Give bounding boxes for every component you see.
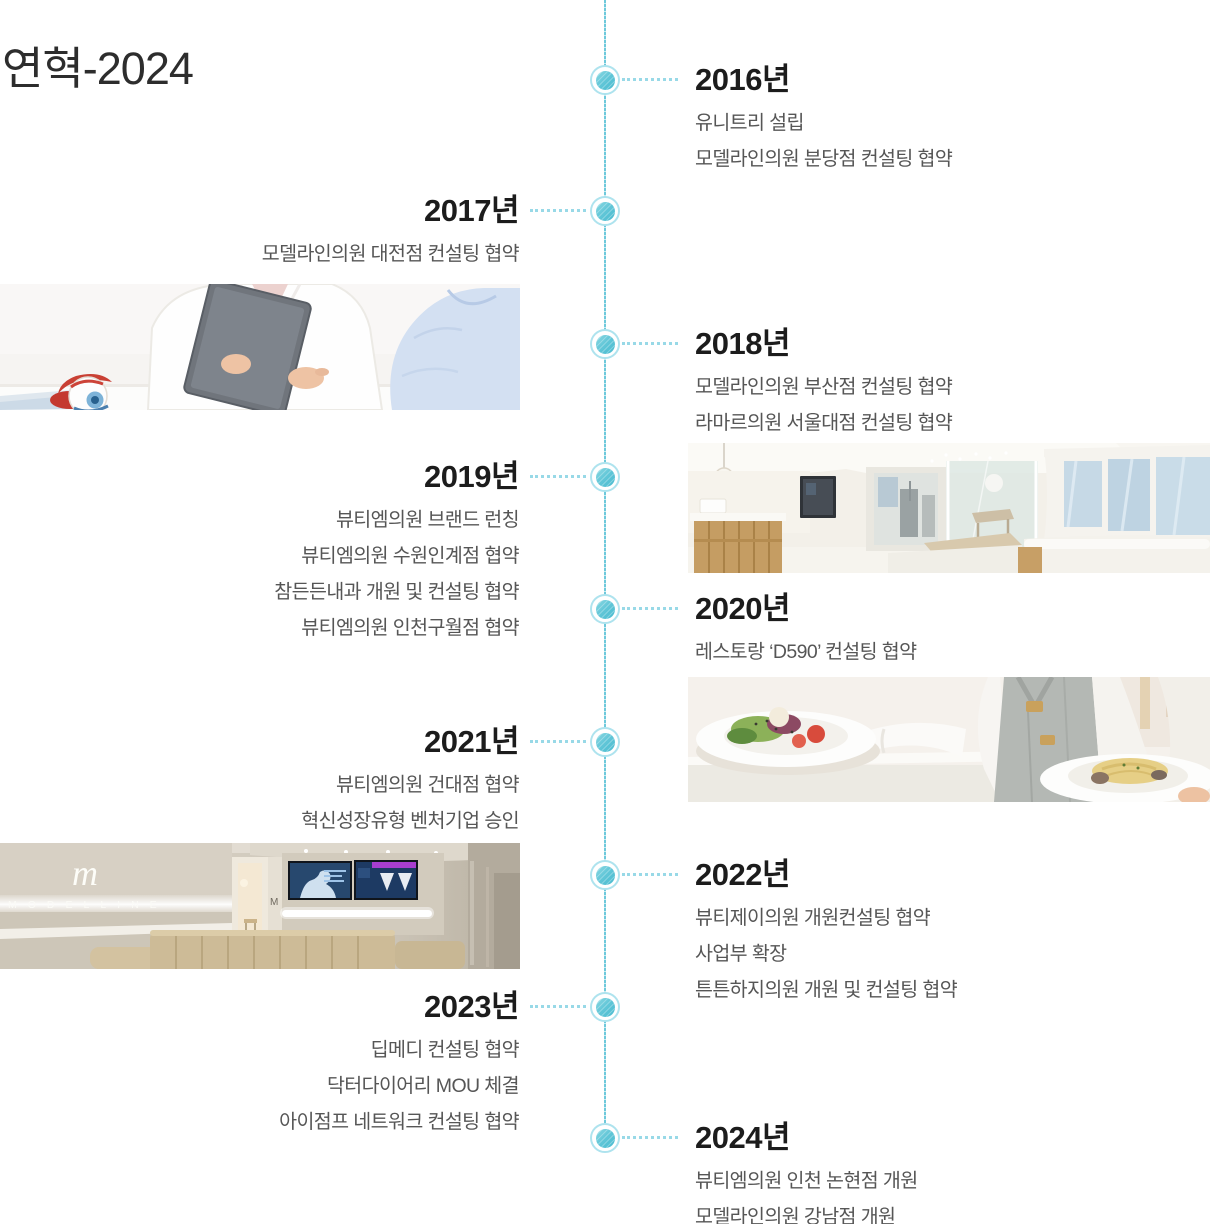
timeline-node-dot [596, 998, 615, 1017]
timeline-node-2023 [590, 992, 620, 1022]
entry-year: 2017년 [4, 190, 519, 232]
entry-year: 2016년 [695, 59, 1210, 101]
timeline-item: 뷰티엠의원 브랜드 런칭 [4, 502, 519, 538]
timeline-item: 뷰티엠의원 수원인계점 협약 [4, 538, 519, 574]
timeline-item: 참든든내과 개원 및 컨설팅 협약 [4, 574, 519, 610]
timeline-node-dot [596, 866, 615, 885]
timeline-item: 모델라인의원 부산점 컨설팅 협약 [695, 369, 1210, 405]
timeline-item: 모델라인의원 대전점 컨설팅 협약 [4, 236, 519, 272]
timeline-node-2022 [590, 860, 620, 890]
timeline-entry-2022: 2022년 뷰티제이의원 개원컨설팅 협약 사업부 확장 튼튼하지의원 개원 및… [695, 854, 1210, 1008]
timeline-entry-2021: 2021년 뷰티엠의원 건대점 협약 혁신성장유형 벤처기업 승인 [4, 721, 519, 839]
timeline-node-2019 [590, 462, 620, 492]
timeline-item: 뷰티엠의원 인천구월점 협약 [4, 610, 519, 646]
entry-year: 2019년 [4, 456, 519, 498]
photo-clinic-interior [688, 443, 1210, 573]
timeline-entry-2018: 2018년 모델라인의원 부산점 컨설팅 협약 라마르의원 서울대점 컨설팅 협… [695, 323, 1210, 441]
timeline-node-dot [596, 202, 615, 221]
timeline-entry-2023: 2023년 딥메디 컨설팅 협약 닥터다이어리 MOU 체결 아이점프 네트워크… [4, 986, 519, 1140]
timeline-node-2018 [590, 329, 620, 359]
connector-2021 [530, 740, 586, 743]
timeline-item: 유니트리 설립 [695, 105, 1210, 141]
timeline-item: 튼튼하지의원 개원 및 컨설팅 협약 [695, 972, 1210, 1008]
timeline-node-2020 [590, 594, 620, 624]
timeline-item: 딥메디 컨설팅 협약 [4, 1032, 519, 1068]
connector-2017 [530, 209, 586, 212]
timeline-entry-2016: 2016년 유니트리 설립 모델라인의원 분당점 컨설팅 협약 [695, 59, 1210, 177]
timeline-item: 혁신성장유형 벤처기업 승인 [4, 803, 519, 839]
timeline-node-2016 [590, 65, 620, 95]
photo-restaurant-serving [688, 677, 1210, 802]
timeline-line [604, 0, 606, 1140]
timeline-item: 아이점프 네트워크 컨설팅 협약 [4, 1104, 519, 1140]
entry-year: 2018년 [695, 323, 1210, 365]
modelline-lobby-photo: m MODELLINE M [0, 843, 520, 969]
entry-year: 2024년 [695, 1117, 1210, 1159]
timeline-entry-2017: 2017년 모델라인의원 대전점 컨설팅 협약 [4, 190, 519, 272]
door-letter-m: M [270, 897, 278, 908]
connector-2018 [622, 342, 678, 345]
timeline-node-dot [596, 71, 615, 90]
timeline-node-2021 [590, 727, 620, 757]
connector-2024 [622, 1136, 678, 1139]
history-timeline-page: 연혁-2024 2016년 유니트리 설립 모델라인의원 분당점 컨설팅 협약 … [0, 0, 1210, 1224]
timeline-node-dot [596, 335, 615, 354]
neon-script-m: m [72, 853, 98, 893]
entry-year: 2023년 [4, 986, 519, 1028]
eye-clinic-consultation-photo [0, 284, 520, 410]
timeline-entry-2024: 2024년 뷰티엠의원 인천 논현점 개원 모델라인의원 강남점 개원 [695, 1117, 1210, 1224]
timeline-node-dot [596, 600, 615, 619]
timeline-node-dot [596, 1129, 615, 1148]
clinic-interior-photo [688, 443, 1210, 573]
timeline-item: 레스토랑 ‘D590’ 컨설팅 협약 [695, 634, 1210, 670]
timeline-node-dot [596, 468, 615, 487]
connector-2019 [530, 475, 586, 478]
timeline-item: 모델라인의원 강남점 개원 [695, 1199, 1210, 1224]
connector-2020 [622, 607, 678, 610]
timeline-item: 닥터다이어리 MOU 체결 [4, 1068, 519, 1104]
connector-2022 [622, 873, 678, 876]
timeline-item: 사업부 확장 [695, 936, 1210, 972]
timeline-node-2024 [590, 1123, 620, 1153]
timeline-node-dot [596, 733, 615, 752]
connector-2016 [622, 78, 678, 81]
timeline-entry-2019: 2019년 뷰티엠의원 브랜드 런칭 뷰티엠의원 수원인계점 협약 참든든내과 … [4, 456, 519, 646]
timeline-item: 뷰티엠의원 건대점 협약 [4, 767, 519, 803]
timeline-item: 모델라인의원 분당점 컨설팅 협약 [695, 141, 1210, 177]
entry-year: 2020년 [695, 588, 1210, 630]
connector-2023 [530, 1005, 586, 1008]
photo-eye-clinic-consultation [0, 284, 520, 410]
photo-modelline-lobby: m MODELLINE M [0, 843, 520, 969]
timeline-item: 뷰티제이의원 개원컨설팅 협약 [695, 900, 1210, 936]
restaurant-serving-photo [688, 677, 1210, 802]
timeline-entry-2020: 2020년 레스토랑 ‘D590’ 컨설팅 협약 [695, 588, 1210, 670]
entry-year: 2022년 [695, 854, 1210, 896]
page-title: 연혁-2024 [2, 42, 193, 96]
modelline-sign-text: MODELLINE [8, 899, 168, 911]
timeline-item: 라마르의원 서울대점 컨설팅 협약 [695, 405, 1210, 441]
timeline-node-2017 [590, 196, 620, 226]
entry-year: 2021년 [4, 721, 519, 763]
timeline-item: 뷰티엠의원 인천 논현점 개원 [695, 1163, 1210, 1199]
